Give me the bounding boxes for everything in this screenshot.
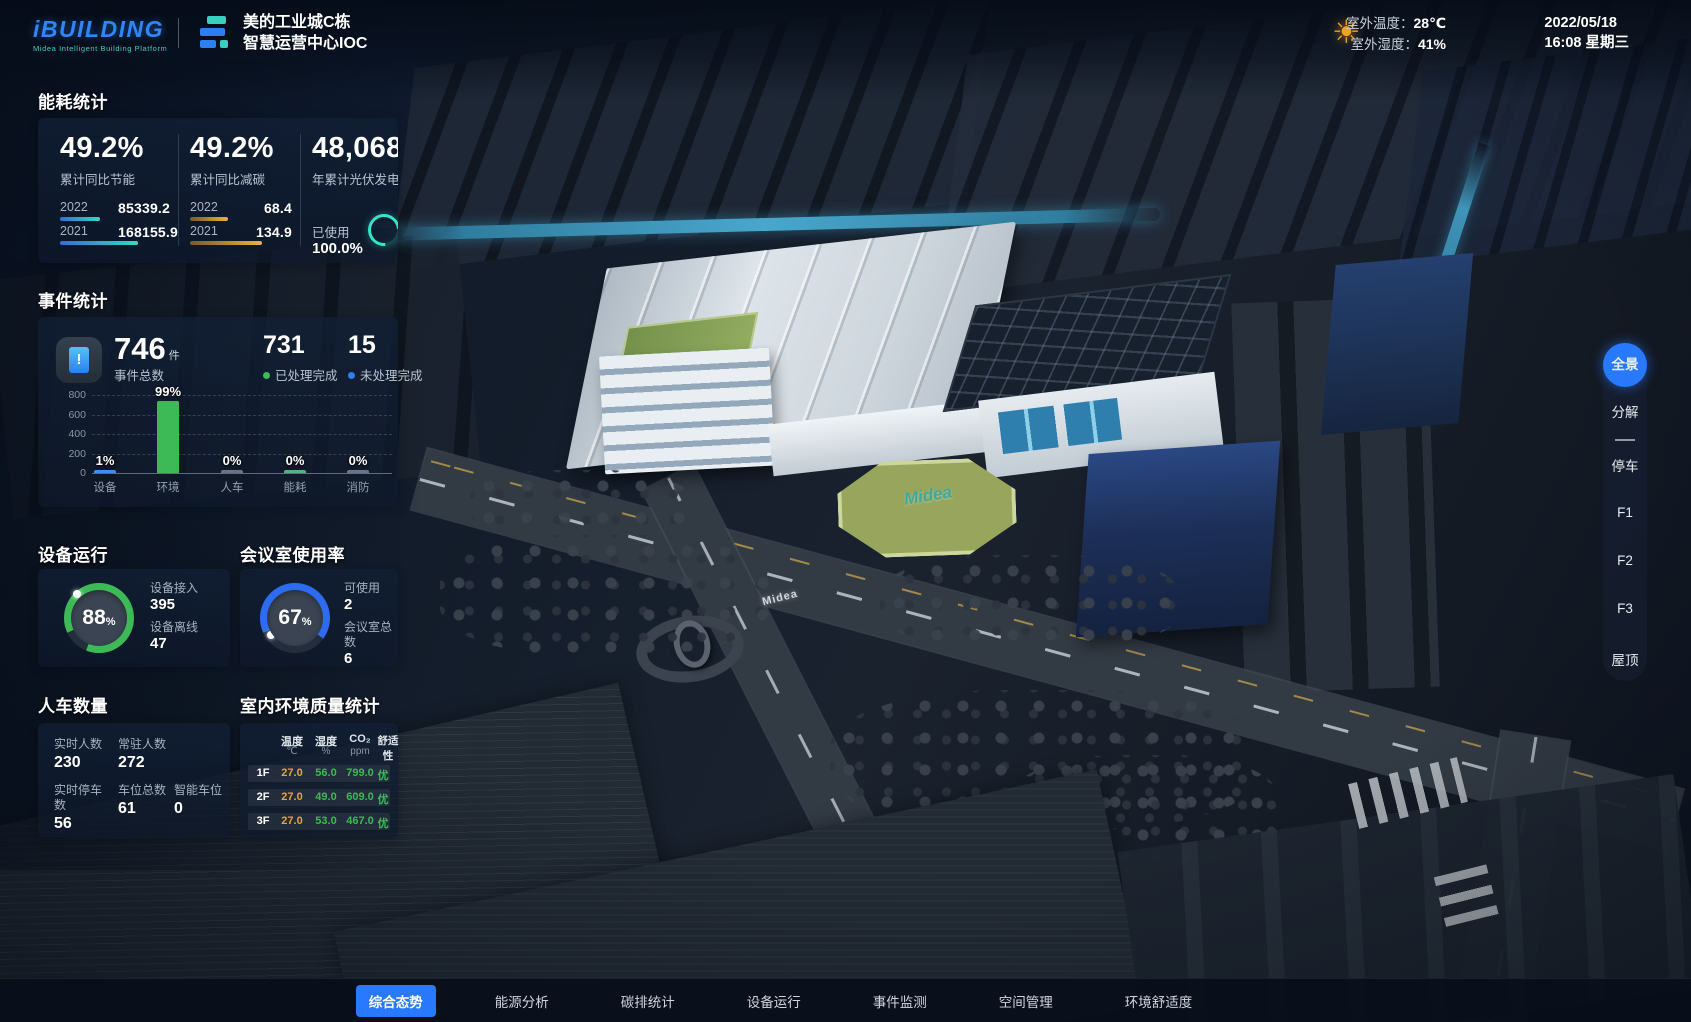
realtime-parking: 实时停车数56: [54, 783, 110, 831]
meeting-panel-title: 会议室使用率: [240, 541, 345, 566]
events-pending: 15 未处理完成: [348, 331, 423, 384]
bar-percent-label: 0%: [273, 453, 317, 468]
bar: [94, 470, 116, 473]
bar-percent-label: 0%: [336, 453, 380, 468]
date-text: 2022/05/18: [1544, 13, 1629, 33]
bar-group-fire: 0%消防: [336, 395, 380, 499]
column-divider: [178, 134, 179, 246]
nav-energy-analysis[interactable]: 能源分析: [482, 985, 562, 1017]
y-tick: 0: [56, 467, 86, 479]
device-panel: 88% 设备接入 395 设备离线 47: [38, 569, 230, 667]
header-divider: [178, 18, 179, 48]
parking-total: 车位总数61: [118, 783, 166, 816]
pv-label: 年累计光伏发电量: [312, 169, 398, 188]
events-total-label: 事件总数: [114, 365, 164, 384]
pv-progress-ring: [361, 207, 398, 252]
bar-group-energy: 0%能耗: [273, 395, 317, 499]
pv-used-value: 100.0%: [312, 240, 363, 257]
view-item-f1[interactable]: F1: [1603, 505, 1647, 520]
outdoor-temp-label: 室外温度：: [1346, 16, 1414, 31]
bar-category-label: 人车: [210, 479, 254, 495]
bar-category-label: 环境: [146, 479, 190, 495]
device-panel-title: 设备运行: [38, 541, 108, 566]
y-tick: 600: [56, 409, 86, 421]
environment-panel: 温度℃ 湿度% CO₂ppm 舒适性 1F 27.0 56.0 799.0 优 …: [240, 723, 398, 838]
pv-used-label: 已使用: [312, 222, 350, 241]
events-processed: 731 已处理完成: [263, 331, 338, 384]
bar-group-device: 1%设备: [83, 395, 127, 499]
building-icon: [200, 16, 230, 50]
y-tick: 400: [56, 428, 86, 440]
meeting-gauge: 67%: [260, 583, 330, 653]
nav-device-running[interactable]: 设备运行: [734, 985, 814, 1017]
nav-carbon-stats[interactable]: 碳排统计: [608, 985, 688, 1017]
logo-subtitle: Midea Intelligent Building Platform: [33, 44, 167, 53]
smart-parking: 智能车位0: [174, 783, 222, 816]
saving-label: 累计同比节能: [60, 169, 144, 188]
nav-space-management[interactable]: 空间管理: [986, 985, 1066, 1017]
saving-percent: 49.2%: [60, 132, 144, 165]
energy-panel-title: 能耗统计: [38, 88, 108, 113]
outdoor-temp-value: 28℃: [1413, 15, 1446, 31]
bar: [157, 401, 179, 473]
resident-people: 常驻人数272: [118, 737, 166, 770]
center-name: 智慧运营中心IOC: [243, 33, 367, 54]
meeting-stats: 可使用 2 会议室总数 6: [344, 581, 398, 674]
bar-percent-label: 99%: [146, 384, 190, 399]
bar-group-environment: 99%环境: [146, 395, 190, 499]
bar: [284, 470, 306, 473]
column-divider: [300, 134, 301, 246]
bottom-nav: 综合态势 能源分析 碳排统计 设备运行 事件监测 空间管理 环境舒适度: [0, 978, 1691, 1022]
people-vehicle-panel: 实时人数230 常驻人数272 实时停车数56 车位总数61 智能车位0: [38, 723, 230, 838]
nav-event-monitor[interactable]: 事件监测: [860, 985, 940, 1017]
green-dot-icon: [263, 372, 270, 379]
view-item-panorama[interactable]: 全景: [1603, 343, 1647, 387]
building-name: 美的工业城C栋: [243, 12, 367, 33]
nav-comfort[interactable]: 环境舒适度: [1112, 985, 1206, 1017]
bar-percent-label: 1%: [83, 453, 127, 468]
bar: [221, 470, 243, 473]
events-bar-chart: 800 600 400 200 0 1%设备 99%环境 0%人车 0%能耗 0…: [56, 395, 392, 499]
ioc-dashboard: Midea Midea iBUILDING Midea Intelligent …: [0, 0, 1691, 1022]
energy-panel: 49.2% 累计同比节能 2022 85339.2 2021 168155.9 …: [38, 118, 398, 263]
outdoor-humidity-label: 室外湿度：: [1350, 37, 1418, 52]
pv-value: 48,068.7kW·h: [312, 132, 398, 165]
y-tick: 800: [56, 389, 86, 401]
view-item-parking[interactable]: 停车: [1603, 455, 1647, 475]
view-item-f2[interactable]: F2: [1603, 553, 1647, 568]
device-gauge: 88%: [64, 583, 134, 653]
carbon-percent: 49.2%: [190, 132, 274, 165]
meeting-panel: 67% 可使用 2 会议室总数 6: [240, 569, 398, 667]
saving-2021-row: 2021 168155.9: [60, 224, 172, 238]
environment-title: 室内环境质量统计: [240, 692, 380, 717]
bar-category-label: 能耗: [273, 479, 317, 495]
environment-row-3f: 3F 27.0 53.0 467.0 优: [248, 813, 390, 830]
device-stats: 设备接入 395 设备离线 47: [150, 581, 198, 659]
carbon-label: 累计同比减碳: [190, 169, 274, 188]
events-panel: ! 746件 事件总数 731 已处理完成 15 未处理完成 800 600 4…: [38, 317, 398, 507]
carbon-2021-row: 2021 134.9: [190, 224, 294, 238]
datetime-block: 2022/05/18 16:08 星期三: [1544, 13, 1629, 53]
page-title: 美的工业城C栋 智慧运营中心IOC: [243, 12, 367, 54]
view-nav-divider: [1615, 439, 1635, 441]
events-total: 746件: [114, 331, 180, 367]
carbon-2022-row: 2022 68.4: [190, 200, 294, 214]
energy-saving-card: 49.2% 累计同比节能: [60, 132, 144, 188]
environment-row-1f: 1F 27.0 56.0 799.0 优: [248, 765, 390, 782]
view-item-f3[interactable]: F3: [1603, 601, 1647, 616]
realtime-people: 实时人数230: [54, 737, 102, 770]
nav-overview[interactable]: 综合态势: [356, 985, 436, 1017]
bar-category-label: 消防: [336, 479, 380, 495]
people-vehicle-title: 人车数量: [38, 692, 108, 717]
environment-row-2f: 2F 27.0 49.0 609.0 优: [248, 789, 390, 806]
bar-category-label: 设备: [83, 479, 127, 495]
events-panel-title: 事件统计: [38, 287, 108, 312]
app-logo: iBUILDING Midea Intelligent Building Pla…: [33, 16, 167, 53]
bar: [347, 470, 369, 473]
outdoor-humidity-value: 41%: [1418, 36, 1446, 52]
event-alert-icon: !: [56, 337, 102, 383]
view-item-roof[interactable]: 屋顶: [1603, 649, 1647, 669]
weather-block: 室外温度：28℃ 室外湿度：41%: [1346, 13, 1446, 55]
blue-dot-icon: [348, 372, 355, 379]
saving-2022-row: 2022 85339.2: [60, 200, 172, 214]
view-item-explode[interactable]: 分解: [1603, 401, 1647, 421]
pv-card: 48,068.7kW·h 年累计光伏发电量: [312, 132, 398, 188]
carbon-card: 49.2% 累计同比减碳: [190, 132, 274, 188]
bar-percent-label: 0%: [210, 453, 254, 468]
bar-group-people-vehicle: 0%人车: [210, 395, 254, 499]
view-switcher: 全景 分解 停车 F1 F2 F3 屋顶: [1603, 343, 1647, 681]
logo-text: iBUILDING: [33, 16, 167, 43]
time-text: 16:08 星期三: [1544, 33, 1629, 53]
y-tick: 200: [56, 448, 86, 460]
